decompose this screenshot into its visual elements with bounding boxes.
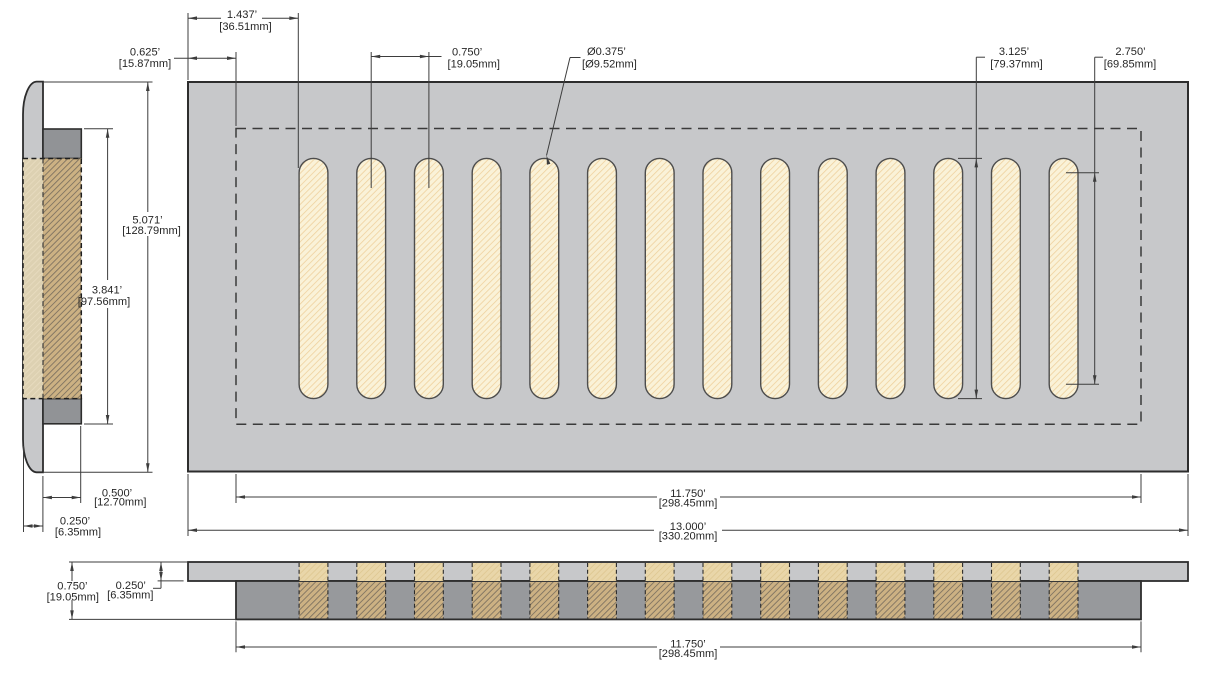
svg-text:1.437’: 1.437’ bbox=[227, 9, 257, 21]
svg-text:[12.70mm]: [12.70mm] bbox=[94, 497, 146, 509]
svg-text:[19.05mm]: [19.05mm] bbox=[448, 58, 500, 70]
svg-text:0.625’: 0.625’ bbox=[130, 46, 160, 58]
svg-text:[69.85mm]: [69.85mm] bbox=[1104, 58, 1156, 70]
svg-text:[Ø9.52mm]: [Ø9.52mm] bbox=[582, 59, 637, 71]
svg-text:[298.45mm]: [298.45mm] bbox=[659, 648, 718, 660]
svg-text:[97.56mm]: [97.56mm] bbox=[78, 296, 130, 308]
svg-text:[298.45mm]: [298.45mm] bbox=[659, 498, 718, 510]
svg-text:[19.05mm]: [19.05mm] bbox=[47, 591, 99, 603]
svg-text:3.125’: 3.125’ bbox=[999, 46, 1029, 58]
svg-text:[36.51mm]: [36.51mm] bbox=[219, 21, 271, 33]
svg-text:2.750’: 2.750’ bbox=[1115, 46, 1145, 58]
svg-text:Ø0.375’: Ø0.375’ bbox=[587, 46, 626, 58]
svg-text:[6.35mm]: [6.35mm] bbox=[55, 526, 101, 538]
svg-text:3.841’: 3.841’ bbox=[92, 285, 122, 297]
svg-text:[6.35mm]: [6.35mm] bbox=[107, 590, 153, 602]
svg-text:[330.20mm]: [330.20mm] bbox=[659, 531, 718, 543]
svg-text:[15.87mm]: [15.87mm] bbox=[119, 58, 171, 70]
svg-text:[128.79mm]: [128.79mm] bbox=[122, 225, 181, 237]
svg-text:0.750’: 0.750’ bbox=[452, 46, 482, 58]
svg-text:[79.37mm]: [79.37mm] bbox=[990, 58, 1042, 70]
